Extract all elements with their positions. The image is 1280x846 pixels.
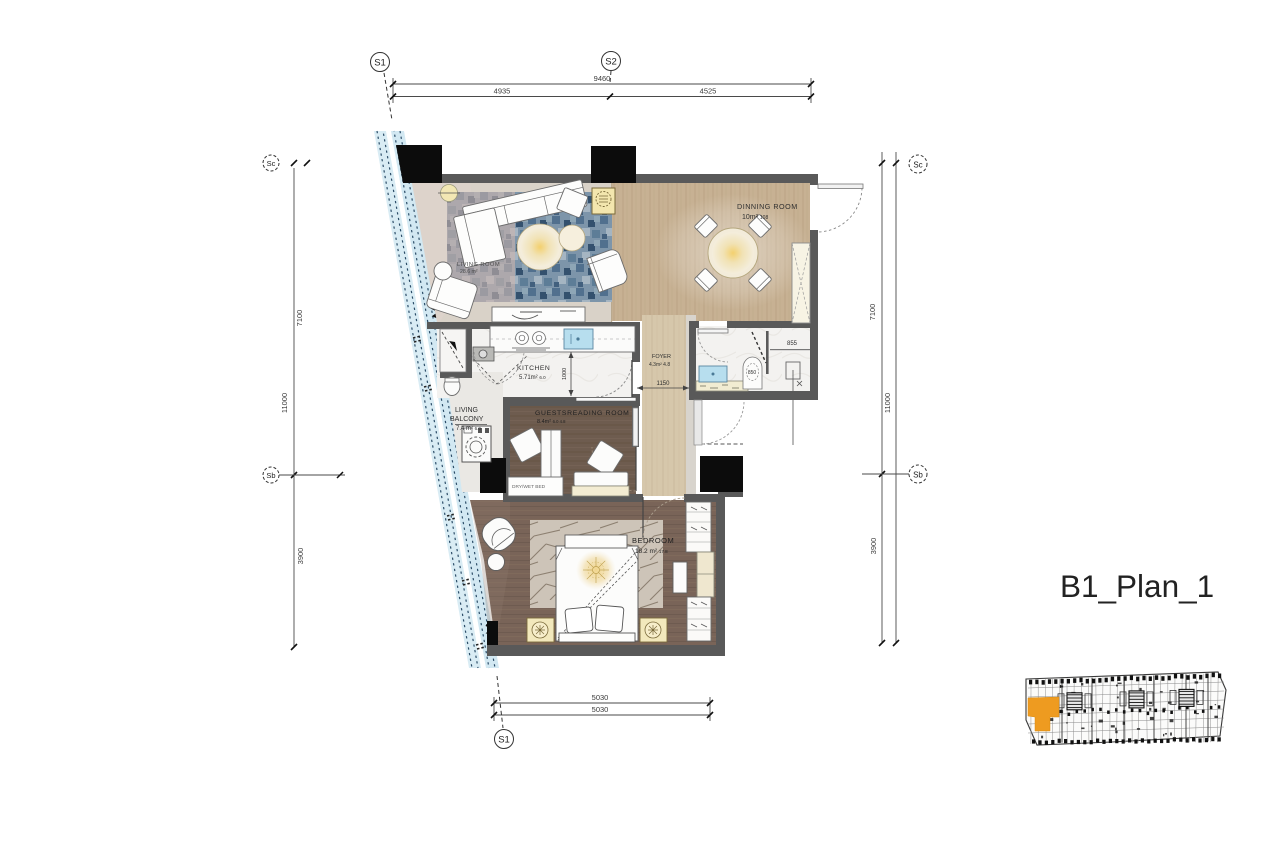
svg-text:7100: 7100 bbox=[295, 310, 304, 327]
svg-text:GUESTSREADING ROOM: GUESTSREADING ROOM bbox=[535, 410, 630, 417]
svg-text:LIVING: LIVING bbox=[455, 407, 478, 414]
svg-text:4525: 4525 bbox=[700, 87, 717, 96]
svg-text:11000: 11000 bbox=[883, 393, 892, 413]
svg-text:BEDROOM: BEDROOM bbox=[632, 536, 674, 545]
svg-text:BALCONY: BALCONY bbox=[450, 416, 484, 423]
svg-text:S1: S1 bbox=[374, 58, 386, 69]
svg-text:4.3m² 4.8: 4.3m² 4.8 bbox=[649, 362, 670, 368]
svg-text:850: 850 bbox=[748, 370, 757, 376]
svg-text:3900: 3900 bbox=[296, 548, 305, 565]
svg-text:5030: 5030 bbox=[592, 705, 609, 714]
svg-text:DRY/WET BED: DRY/WET BED bbox=[512, 484, 546, 490]
svg-text:855: 855 bbox=[787, 341, 798, 347]
svg-text:5030: 5030 bbox=[592, 693, 609, 702]
svg-text:1000: 1000 bbox=[562, 368, 568, 380]
svg-text:1150: 1150 bbox=[657, 381, 671, 387]
svg-text:7100: 7100 bbox=[868, 304, 877, 321]
svg-text:LIVING ROOM: LIVING ROOM bbox=[457, 262, 500, 268]
svg-text:KITCHEN: KITCHEN bbox=[517, 365, 550, 372]
svg-text:FOYER: FOYER bbox=[652, 354, 671, 360]
svg-text:11000: 11000 bbox=[280, 393, 289, 413]
svg-text:Sc: Sc bbox=[913, 161, 922, 170]
svg-text:18.2 m² 17.8: 18.2 m² 17.8 bbox=[635, 548, 668, 555]
svg-text:Sc: Sc bbox=[267, 159, 276, 168]
svg-text:3900: 3900 bbox=[869, 538, 878, 555]
svg-text:B1_Plan_1: B1_Plan_1 bbox=[1060, 568, 1214, 604]
svg-text:Sb: Sb bbox=[266, 471, 275, 480]
svg-text:S1: S1 bbox=[498, 735, 510, 746]
svg-text:9460: 9460 bbox=[594, 74, 611, 83]
svg-text:S2: S2 bbox=[605, 57, 617, 68]
svg-text:4935: 4935 bbox=[494, 87, 511, 96]
svg-text:DINNING ROOM: DINNING ROOM bbox=[737, 202, 798, 211]
svg-text:28.6 m²: 28.6 m² bbox=[460, 269, 478, 275]
svg-text:Sb: Sb bbox=[913, 471, 923, 480]
svg-text:10m² 108: 10m² 108 bbox=[742, 214, 768, 221]
